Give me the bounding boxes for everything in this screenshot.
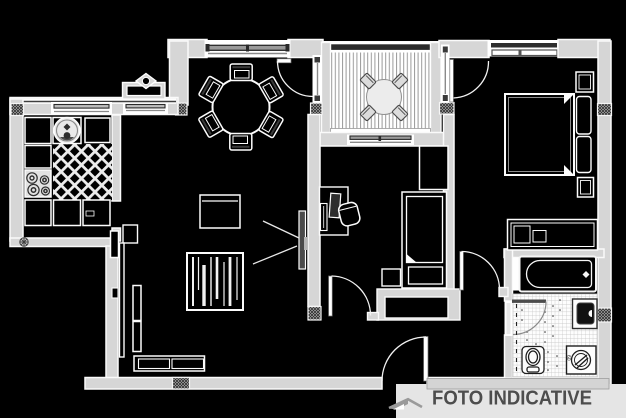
svg-text:FOTO INDICATIVE: FOTO INDICATIVE xyxy=(432,388,592,410)
svg-text:60: 60 xyxy=(565,355,571,361)
